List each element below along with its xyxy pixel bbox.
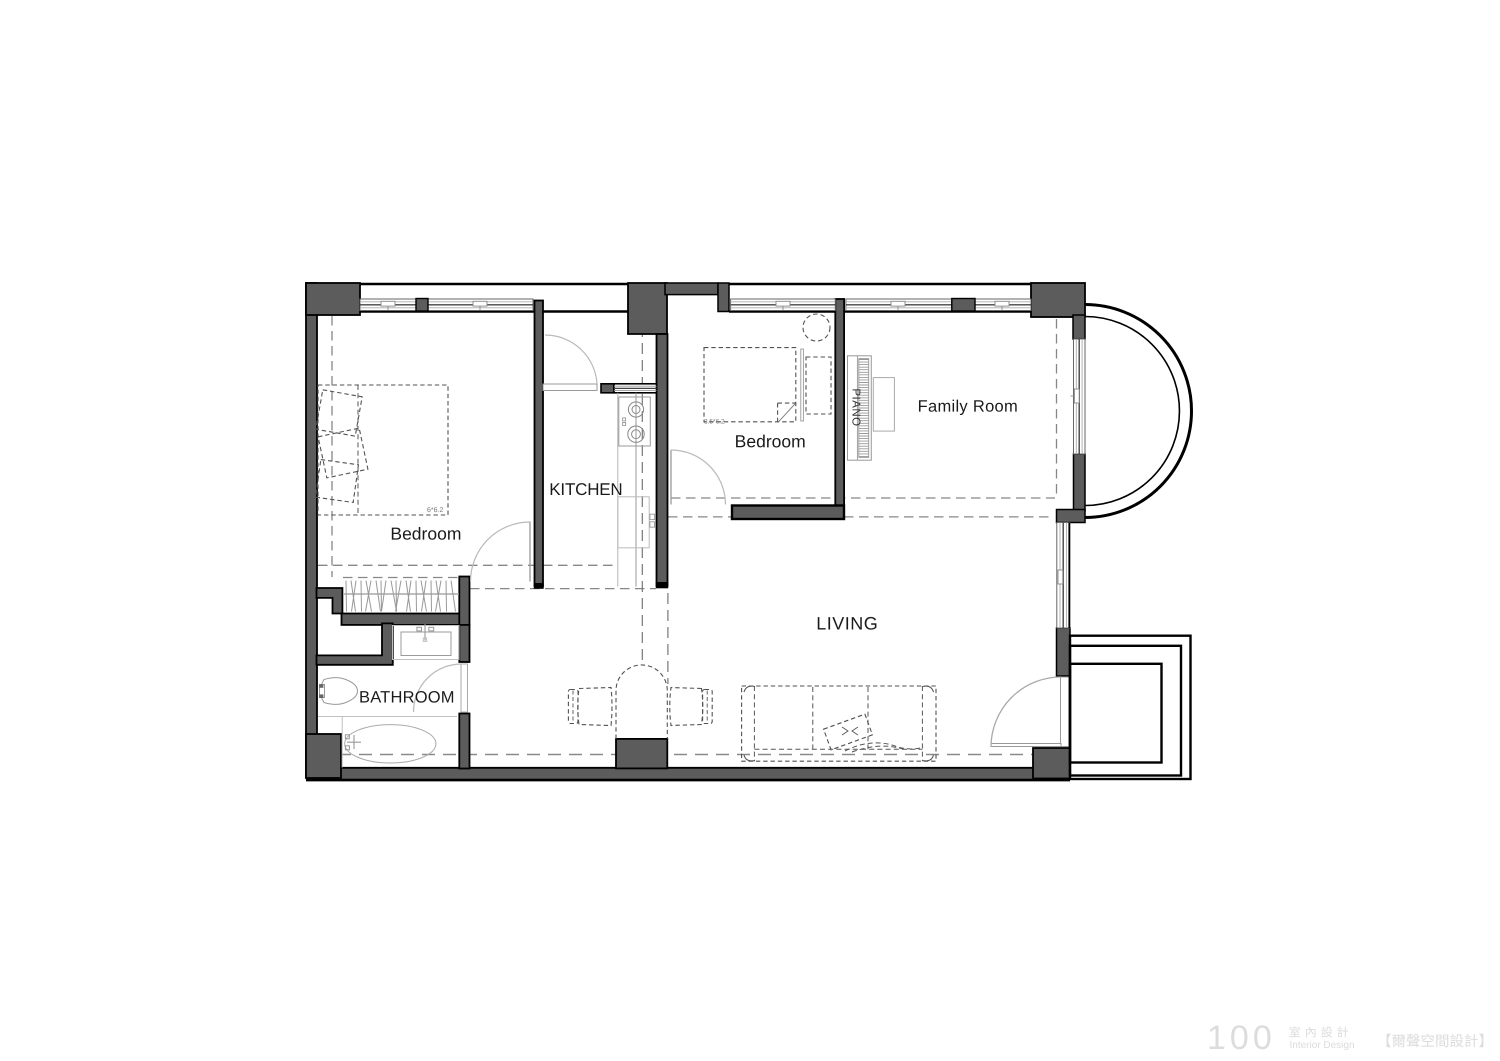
- svg-text:Interior Design: Interior Design: [1289, 1040, 1354, 1051]
- svg-text:LIVING: LIVING: [816, 614, 878, 634]
- svg-text:100: 100: [1207, 1019, 1276, 1057]
- svg-text:室內設計: 室內設計: [1289, 1026, 1353, 1040]
- svg-text:Family Room: Family Room: [918, 398, 1018, 416]
- svg-text:Bedroom: Bedroom: [735, 431, 806, 451]
- svg-text:【爾聲空間設計】: 【爾聲空間設計】: [1377, 1033, 1493, 1050]
- svg-text:3.5*6.2: 3.5*6.2: [704, 419, 725, 426]
- svg-text:PIANO: PIANO: [849, 388, 861, 426]
- svg-text:KITCHEN: KITCHEN: [549, 480, 622, 499]
- svg-text:Bedroom: Bedroom: [390, 524, 461, 544]
- svg-text:BATHROOM: BATHROOM: [359, 689, 455, 707]
- svg-text:6*6.2: 6*6.2: [427, 507, 443, 514]
